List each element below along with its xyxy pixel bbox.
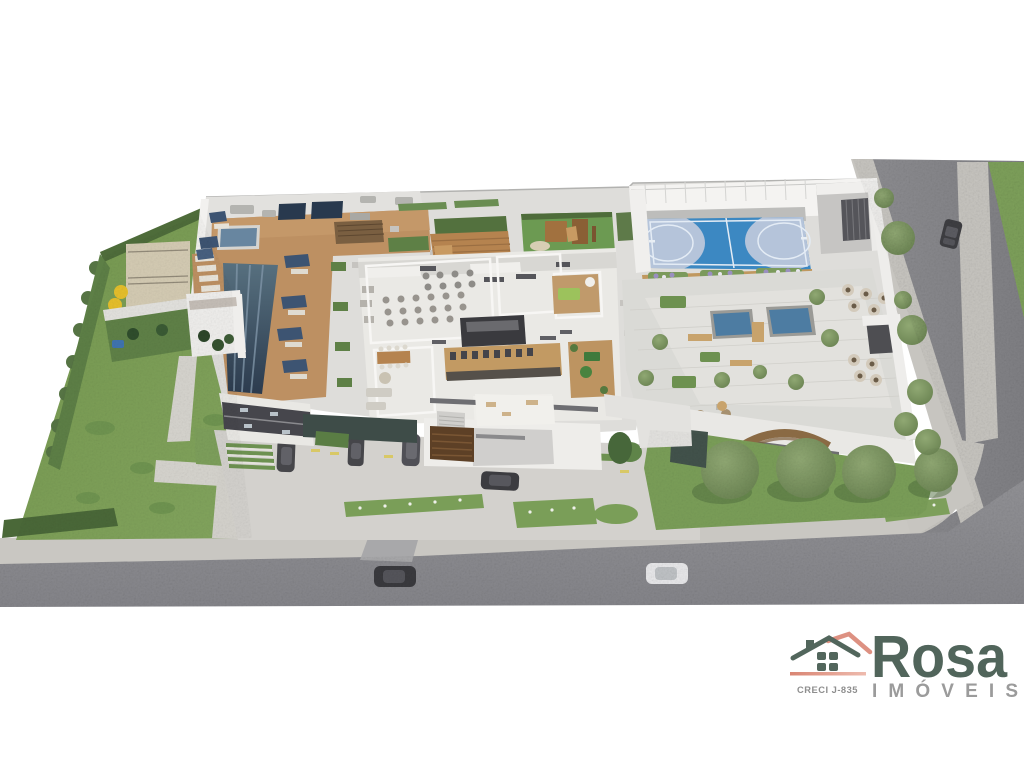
- svg-text:CRECI J-835: CRECI J-835: [797, 685, 858, 696]
